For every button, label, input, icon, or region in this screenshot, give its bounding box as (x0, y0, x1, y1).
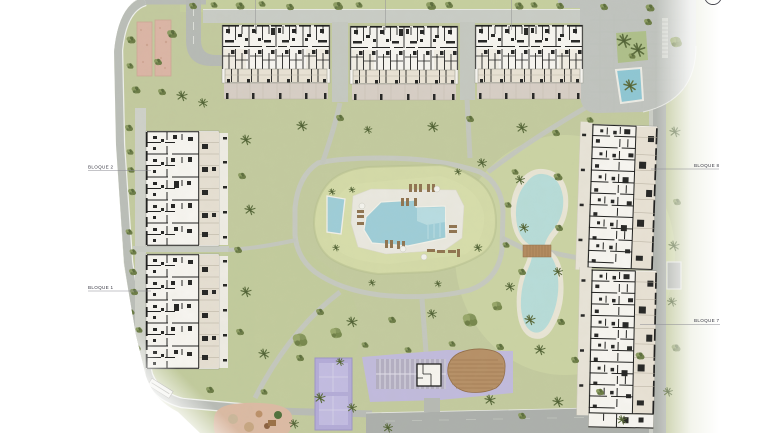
svg-text:BLOQUE 2: BLOQUE 2 (88, 165, 114, 170)
svg-text:BLOQUE 7: BLOQUE 7 (694, 318, 720, 323)
svg-text:BLOQUE 1: BLOQUE 1 (88, 285, 114, 290)
svg-text:BLOQUE 8: BLOQUE 8 (694, 163, 720, 168)
